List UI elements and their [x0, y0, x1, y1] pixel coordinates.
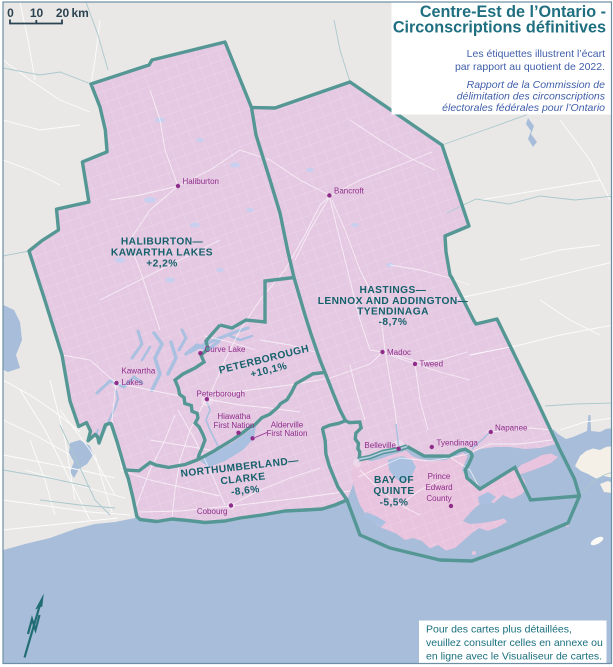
svg-text:Hiawatha: Hiawatha: [217, 412, 251, 421]
svg-text:Napanee: Napanee: [495, 424, 528, 433]
svg-text:Lakes: Lakes: [122, 378, 143, 387]
svg-text:County: County: [426, 494, 451, 503]
svg-text:0: 0: [7, 6, 14, 20]
svg-text:km: km: [72, 6, 89, 20]
svg-text:HASTINGS—: HASTINGS—: [360, 285, 427, 296]
svg-text:KAWARTHA LAKES: KAWARTHA LAKES: [111, 248, 213, 259]
svg-text:LENNOX AND ADDINGTON—: LENNOX AND ADDINGTON—: [318, 296, 469, 307]
svg-text:Bancroft: Bancroft: [334, 187, 365, 196]
svg-text:Peterborough: Peterborough: [197, 390, 245, 399]
svg-text:-8,7%: -8,7%: [379, 317, 408, 328]
svg-text:QUINTE: QUINTE: [373, 486, 414, 497]
svg-text:électorales fédérales pour l’O: électorales fédérales pour l’Ontario: [442, 102, 605, 114]
svg-text:+2,2%: +2,2%: [146, 259, 177, 270]
svg-text:First Nation: First Nation: [267, 429, 308, 438]
svg-text:20: 20: [56, 6, 70, 20]
svg-text:Les étiquettes illustrent l’éc: Les étiquettes illustrent l’écart: [467, 48, 605, 60]
svg-text:Madoc: Madoc: [387, 348, 411, 357]
svg-text:Tyendinaga: Tyendinaga: [437, 439, 479, 448]
svg-text:délimitation des circonscripti: délimitation des circonscriptions: [457, 91, 606, 103]
svg-text:Pour des cartes plus détaillée: Pour des cartes plus détaillées,: [426, 624, 572, 636]
svg-text:veuillez consulter celles en a: veuillez consulter celles en annexe ou: [426, 637, 603, 649]
svg-text:HALIBURTON—: HALIBURTON—: [121, 237, 204, 248]
svg-text:TYENDINAGA: TYENDINAGA: [357, 307, 429, 318]
svg-text:First Nation: First Nation: [214, 421, 255, 430]
svg-text:Circonscriptions définitives: Circonscriptions définitives: [393, 19, 606, 37]
svg-text:Kawartha: Kawartha: [122, 367, 156, 376]
svg-text:Tweed: Tweed: [420, 360, 444, 369]
svg-text:Prince: Prince: [428, 472, 451, 481]
svg-text:10: 10: [30, 6, 44, 20]
svg-text:Edward: Edward: [425, 483, 452, 492]
svg-text:par rapport au quotient de 202: par rapport au quotient de 2022.: [455, 61, 605, 73]
svg-text:en ligne avec le Visualiseur d: en ligne avec le Visualiseur de cartes.: [426, 651, 602, 663]
svg-text:Curve Lake: Curve Lake: [205, 345, 246, 354]
svg-text:Cobourg: Cobourg: [197, 507, 228, 516]
svg-text:Belleville: Belleville: [364, 441, 396, 450]
svg-text:BAY OF: BAY OF: [374, 475, 414, 486]
svg-text:-5,5%: -5,5%: [380, 498, 409, 509]
svg-text:Haliburton: Haliburton: [183, 177, 219, 186]
svg-text:Rapport de la Commission de: Rapport de la Commission de: [467, 79, 605, 91]
